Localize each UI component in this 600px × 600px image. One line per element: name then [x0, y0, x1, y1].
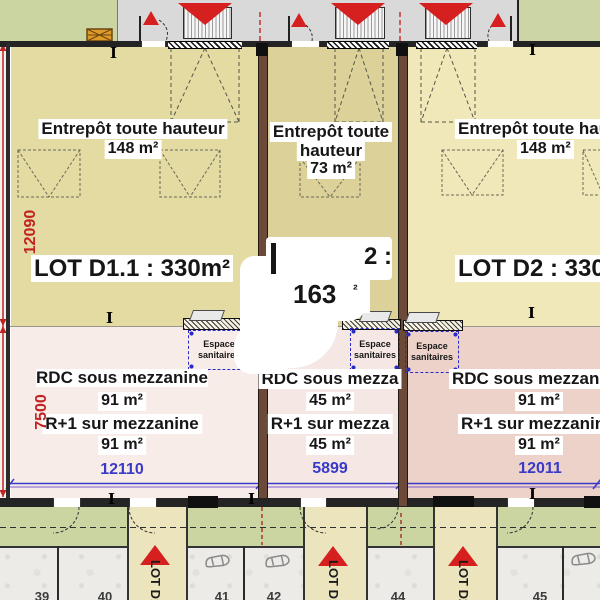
parking-number: 39	[35, 589, 49, 600]
dim-warehouse-height: 12090	[22, 210, 40, 255]
sanitary-label-line2: sanitaires	[354, 350, 396, 361]
dim-width-d11: 12110	[100, 461, 144, 479]
rear-threshold-3	[584, 496, 600, 508]
column-icon: I	[248, 492, 255, 507]
sectional-door-sill-3	[416, 41, 477, 49]
white-blob	[234, 322, 288, 374]
parking-number: 42	[267, 589, 281, 600]
dim-width-d2: 12011	[518, 460, 562, 478]
grass-left	[0, 0, 118, 41]
column-icon: I	[528, 306, 535, 321]
warehouse-d2	[406, 47, 600, 327]
r1-area-d12: 45 m²	[306, 436, 354, 455]
sanitary-label-line1: Espace	[203, 339, 235, 350]
rdc-area-d2: 91 m²	[515, 392, 563, 411]
pedestrian-door-arrow-icon-3	[490, 13, 506, 27]
parking-number: 45	[533, 589, 547, 600]
column-icon: I	[529, 487, 536, 502]
sanitary-box-d12: Espace sanitaires	[350, 328, 400, 371]
r1-area-d2: 91 m²	[515, 436, 563, 455]
floor-plan: Espace sanitaires Espace sanitaires Espa…	[0, 0, 600, 600]
grass-right	[517, 0, 600, 41]
rear-door-opening-3	[300, 498, 327, 507]
door-arrow-icon-1	[178, 3, 232, 25]
r1-area-d11: 91 m²	[98, 436, 146, 455]
parking-number: 40	[98, 589, 112, 600]
sanitary-box-d2: Espace sanitaires	[405, 331, 459, 373]
left-wall	[6, 42, 10, 498]
parking-area	[0, 546, 600, 600]
r1-label-d2: R+1 sur mezzanine	[458, 414, 600, 434]
lot-d12-area-sup-fragment: ²	[353, 281, 358, 297]
column-icon: I	[106, 311, 113, 326]
car-icon	[567, 548, 599, 569]
dim-width-d12: 5899	[312, 460, 348, 478]
rdc-label-d2: RDC sous mezzanine	[449, 369, 600, 389]
warehouse-label-d2: Entrepôt toute hauteur	[455, 119, 600, 139]
warehouse-label-d11: Entrepôt toute hauteur	[38, 119, 227, 139]
lot-d12-label-fragment: 2 :	[364, 243, 392, 271]
pedestrian-door-opening-3	[487, 41, 514, 47]
party-wall-d12-d2	[398, 46, 408, 506]
rdc-area-d12: 45 m²	[306, 392, 354, 411]
lot-d12-area-fragment: 163	[293, 279, 336, 310]
door-arrow-icon-2	[331, 3, 385, 25]
lot-label-d2: LOT D2 : 330m²	[455, 255, 600, 282]
car-icon	[261, 550, 293, 571]
warehouse-d11	[11, 47, 258, 327]
column-icon: I	[108, 492, 115, 507]
rdc-label-d11: RDC sous mezzanine	[36, 369, 208, 387]
ramp-d11	[189, 310, 225, 321]
ramp-d2	[405, 312, 440, 323]
parking-number: 44	[391, 589, 405, 600]
r1-label-d12: R+1 sur mezza	[268, 414, 393, 434]
sectional-door-sill-2	[327, 41, 389, 49]
sectional-door-sill-1	[168, 41, 242, 49]
warehouse-area-d11: 148 m²	[105, 140, 162, 159]
rear-door-opening-1	[53, 498, 81, 507]
wall-cap-1	[256, 43, 268, 56]
column-icon: I	[110, 46, 117, 61]
pedestrian-door-opening-2	[291, 41, 320, 47]
column-icon: I	[529, 43, 536, 58]
r1-label-d11: R+1 sur mezzanine	[42, 414, 202, 434]
rear-door-opening-2	[129, 498, 157, 507]
pedestrian-door-arrow-icon-2	[291, 13, 307, 27]
warehouse-area-d12: 73 m²	[307, 160, 355, 179]
dim-mezzanine-height: 7500	[33, 394, 51, 430]
warehouse-area-d2: 148 m²	[517, 140, 574, 159]
white-blob	[334, 268, 368, 321]
warehouse-label-d12-line1: Entrepôt toute	[270, 122, 392, 142]
rear-threshold-1	[188, 496, 218, 508]
pedestrian-door-opening-1	[141, 41, 166, 47]
warehouse-label-d12-line2: hauteur	[297, 141, 365, 161]
lot-label-d11: LOT D1.1 : 330m²	[31, 255, 233, 282]
entrance-label-d12: LOT D1.2	[326, 560, 341, 600]
rdc-area-d11: 91 m²	[98, 392, 146, 411]
sidewalk-band	[0, 507, 600, 546]
rear-threshold-2	[433, 496, 474, 507]
lot-d12-label-stub	[271, 243, 276, 274]
door-arrow-icon-3	[419, 3, 473, 25]
parking-number: 41	[215, 589, 229, 600]
pedestrian-door-arrow-icon-1	[143, 11, 159, 25]
entrance-label-d11: LOT D1.1	[148, 560, 163, 600]
entrance-label-d2: LOT D2	[456, 560, 471, 600]
sanitary-label-line1: Espace	[416, 341, 448, 352]
sanitary-label-line1: Espace	[359, 339, 391, 350]
wall-cap-2	[396, 43, 408, 56]
car-icon	[201, 550, 233, 571]
sanitary-label-line2: sanitaires	[411, 352, 453, 363]
